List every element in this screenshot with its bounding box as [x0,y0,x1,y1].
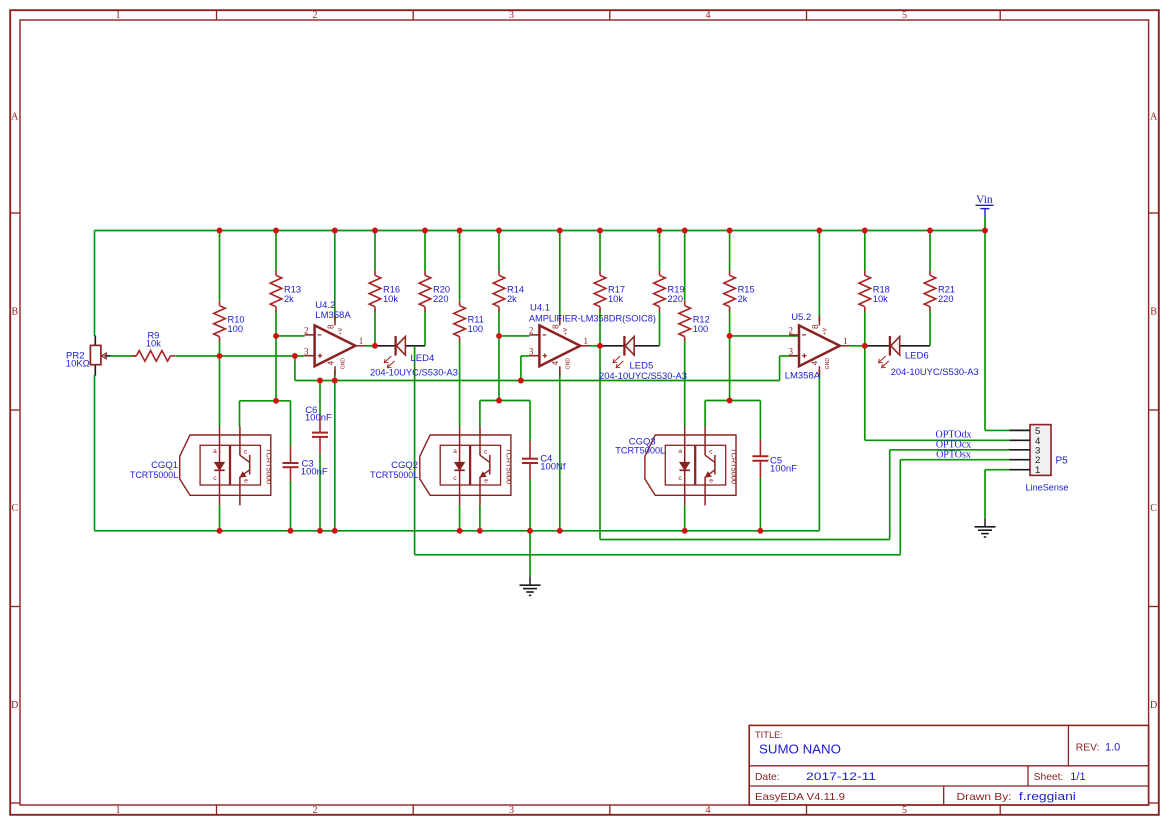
svg-text:LED4: LED4 [411,353,435,364]
svg-text:1.0: 1.0 [1105,742,1120,754]
svg-text:Date:: Date: [755,772,780,783]
svg-text:204-10UYC/S530-A3: 204-10UYC/S530-A3 [599,371,687,382]
svg-text:TCRT5000L: TCRT5000L [615,446,665,457]
svg-text:c: c [244,448,248,455]
svg-text:10k: 10k [146,339,161,349]
svg-text:TCRT5000L: TCRT5000L [370,470,418,481]
svg-text:LM358A: LM358A [315,310,351,321]
svg-text:1: 1 [116,10,121,21]
svg-text:2k: 2k [507,294,517,304]
svg-text:2k: 2k [738,294,748,304]
svg-text:1: 1 [843,336,848,346]
svg-text:LED5: LED5 [630,361,654,372]
svg-text:R21: R21 [938,284,955,294]
svg-text:TCRT5000: TCRT5000 [730,448,739,484]
svg-text:LineSense: LineSense [1026,482,1069,493]
svg-text:AMPLIFIER-LM358DR(SOIC8): AMPLIFIER-LM358DR(SOIC8) [529,313,656,324]
svg-text:4: 4 [706,805,711,816]
svg-text:100: 100 [468,324,484,334]
svg-text:100nF: 100nF [305,413,332,424]
svg-text:OPTOsx: OPTOsx [936,450,971,461]
svg-text:100: 100 [693,324,709,334]
svg-text:R18: R18 [873,284,890,294]
svg-text:100nF: 100nF [770,464,797,475]
svg-text:EasyEDA V4.11.9: EasyEDA V4.11.9 [755,792,845,803]
svg-text:GND: GND [565,358,571,370]
svg-text:+V: +V [338,328,344,335]
svg-text:10k: 10k [873,294,888,304]
svg-text:a: a [678,448,682,455]
svg-text:100: 100 [228,324,244,334]
svg-text:c: c [484,448,488,455]
svg-text:3: 3 [304,346,309,356]
svg-text:204-10UYC/S530-A3: 204-10UYC/S530-A3 [370,367,458,378]
svg-text:4: 4 [550,360,560,365]
svg-text:10k: 10k [608,294,623,304]
svg-text:1: 1 [116,805,121,816]
svg-text:4: 4 [810,360,820,365]
svg-text:2: 2 [529,326,534,336]
svg-text:5: 5 [902,10,907,21]
svg-text:8: 8 [550,324,560,329]
svg-text:220: 220 [668,294,684,304]
svg-text:8: 8 [326,324,336,329]
svg-text:D: D [1150,700,1157,711]
svg-text:C: C [1150,503,1157,514]
svg-text:c: c [213,475,217,482]
svg-text:1/1: 1/1 [1070,771,1085,783]
svg-text:GND: GND [825,358,831,370]
svg-text:P5: P5 [1056,456,1069,467]
svg-text:4: 4 [706,10,711,21]
svg-text:c: c [709,448,713,455]
svg-text:e: e [244,477,248,484]
svg-text:2: 2 [304,326,309,336]
svg-text:e: e [709,477,713,484]
svg-text:LM358A: LM358A [785,370,821,381]
svg-text:GND: GND [341,358,347,370]
svg-text:A: A [1150,112,1158,123]
svg-text:Sheet:: Sheet: [1034,772,1064,783]
svg-text:+V: +V [822,328,828,335]
svg-text:U5.2: U5.2 [791,312,811,323]
svg-text:a: a [453,448,457,455]
svg-text:R12: R12 [693,315,710,325]
svg-text:220: 220 [938,294,954,304]
svg-text:B: B [11,307,18,318]
svg-text:R17: R17 [608,284,625,294]
svg-text:4: 4 [325,360,335,365]
svg-text:2: 2 [313,10,318,21]
svg-text:R14: R14 [507,284,524,294]
svg-text:220: 220 [433,294,449,304]
svg-text:TCRT5000L: TCRT5000L [130,470,178,481]
svg-text:1: 1 [1035,465,1040,476]
svg-text:R10: R10 [228,315,245,325]
svg-text:R20: R20 [433,284,450,294]
svg-text:3: 3 [529,346,534,356]
svg-text:TITLE:: TITLE: [755,730,783,740]
svg-text:1: 1 [359,336,364,346]
svg-text:R16: R16 [383,284,400,294]
svg-text:Vin: Vin [976,194,993,206]
svg-text:REV:: REV: [1076,743,1100,754]
svg-text:c: c [453,475,457,482]
svg-text:C: C [11,503,18,514]
svg-text:8: 8 [810,324,820,329]
svg-text:e: e [484,477,488,484]
svg-text:204-10UYC/S530-A3: 204-10UYC/S530-A3 [891,367,979,378]
svg-text:D: D [11,700,18,711]
svg-text:3: 3 [509,10,514,21]
svg-text:2k: 2k [284,294,294,304]
svg-text:3: 3 [509,805,514,816]
svg-text:Drawn By:: Drawn By: [957,792,1012,803]
svg-text:100Nf: 100Nf [540,462,566,473]
svg-text:TCRT5000: TCRT5000 [264,448,273,484]
svg-text:R19: R19 [668,284,685,294]
svg-text:3: 3 [788,346,793,356]
svg-text:c: c [678,475,682,482]
svg-text:B: B [1150,307,1157,318]
svg-text:5: 5 [902,805,907,816]
svg-text:100nF: 100nF [301,467,328,478]
svg-text:TCRT5000: TCRT5000 [505,448,514,484]
svg-text:10KΩ: 10KΩ [66,359,90,370]
svg-text:f.reggiani: f.reggiani [1019,791,1076,803]
svg-text:SUMO NANO: SUMO NANO [759,741,841,756]
svg-text:2: 2 [788,326,793,336]
svg-text:1: 1 [584,336,589,346]
svg-text:U4.1: U4.1 [530,303,550,314]
svg-text:R15: R15 [738,284,755,294]
svg-text:LED6: LED6 [905,351,929,362]
svg-text:R11: R11 [468,315,484,325]
svg-text:R13: R13 [284,284,301,294]
svg-text:10k: 10k [383,294,398,304]
svg-text:2017-12-11: 2017-12-11 [806,771,876,783]
svg-text:A: A [11,112,19,123]
svg-text:a: a [213,448,217,455]
svg-text:2: 2 [313,805,318,816]
svg-text:+V: +V [563,328,569,335]
